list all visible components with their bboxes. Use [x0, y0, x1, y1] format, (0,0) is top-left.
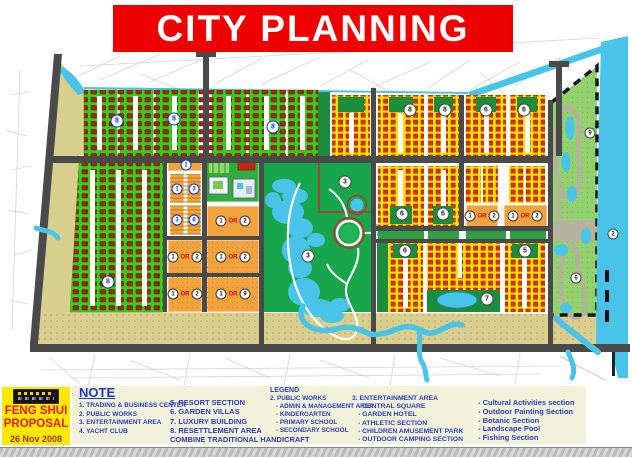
- proposal-line2: PROPOSAL: [2, 418, 70, 431]
- title-banner: CITY PLANNING: [113, 5, 513, 52]
- zone-number-label: 6: [518, 104, 531, 117]
- zone-number-label: 8: [168, 113, 181, 126]
- company-logo: [13, 389, 59, 404]
- zone-number-label: 3: [189, 184, 200, 195]
- proposal-line1: FENG SHUI: [2, 405, 70, 418]
- legend-item: - GARDEN HOTEL: [355, 411, 463, 419]
- plaza: [552, 220, 598, 242]
- legend-head: 3. ENTERTAINMENT AREA: [352, 395, 463, 403]
- legend-extra: - Cultural Activities section- Outdoor P…: [478, 399, 574, 443]
- legend-title: LEGEND: [270, 387, 299, 394]
- legend-item: - CENTRAL SQUARE: [355, 403, 463, 411]
- zone-or-label: 1OR2: [465, 211, 500, 222]
- zone-number-label: 1: [181, 160, 192, 171]
- legend-entertainment: 3. ENTERTAINMENT AREA - CENTRAL SQUARE- …: [352, 395, 463, 444]
- zone-or-label: 1OR2: [168, 252, 203, 263]
- zone-number-label: 9: [585, 128, 596, 139]
- south-road: [30, 344, 630, 352]
- zone-number-label: 2: [608, 229, 619, 240]
- zone-number-label: 6: [396, 208, 409, 221]
- zone-number-label: 3: [172, 215, 183, 226]
- or-text: OR: [477, 213, 488, 219]
- river-east: [596, 36, 628, 378]
- zone-or-label: 1OR2: [508, 211, 543, 222]
- or-text: OR: [180, 254, 191, 260]
- note-item: COMBINE TRADITIONAL HANDICRAFT: [170, 435, 309, 444]
- note-title: NOTE: [79, 385, 115, 400]
- city-planning-slide: CITY PLANNING 88888866666573396211336 1O…: [0, 0, 632, 457]
- zone-number-label: 8: [267, 121, 280, 134]
- luxury-pond: [437, 292, 477, 308]
- page-title: CITY PLANNING: [156, 8, 469, 50]
- proposal-box: FENG SHUI PROPOSAL 26 Nov 2008: [2, 387, 70, 445]
- zone-number-label: 6: [189, 215, 200, 226]
- or-text: OR: [228, 254, 239, 260]
- proposal-date: 26 Nov 2008: [2, 434, 70, 444]
- legend-item: - CHILDREN AMUSEMENT PARK: [355, 428, 463, 436]
- zone-number-label: 8: [102, 276, 115, 289]
- zone-or-label: 1OR2: [168, 289, 203, 300]
- zone-number-label: 5: [519, 245, 532, 258]
- or-text: OR: [180, 291, 191, 297]
- legend-item: - OUTDOOR CAMPING SECTION: [355, 436, 463, 444]
- zone-or-label: 1OR2: [216, 252, 251, 263]
- or-text: OR: [228, 218, 239, 224]
- bottom-table-edge: [0, 447, 632, 457]
- zone-number-label: 8: [111, 115, 124, 128]
- zone-or-label: 1OR9: [216, 289, 251, 300]
- zone-number-label: 8: [404, 104, 417, 117]
- zone-number-label: 7: [481, 293, 494, 306]
- legend-item: - ATHLETIC SECTION: [355, 420, 463, 428]
- north-spur-road: [556, 66, 562, 156]
- green-strips: [378, 231, 546, 239]
- zone-number-label: 8: [439, 104, 452, 117]
- zone-number-label: 6: [399, 245, 412, 258]
- zone-number-label: 6: [571, 273, 582, 284]
- zone-number-label: 6: [480, 104, 493, 117]
- zone-number-label: 3: [339, 176, 352, 189]
- legend-sublist: - CENTRAL SQUARE- GARDEN HOTEL- ATHLETIC…: [352, 403, 463, 444]
- north-spur-road: [203, 56, 209, 157]
- legend-item: - Fishing Section: [478, 434, 574, 443]
- zone-or-label: 1OR2: [216, 216, 251, 227]
- zone-number-label: 6: [437, 208, 450, 221]
- public-works-block: [205, 158, 259, 202]
- or-text: OR: [520, 213, 531, 219]
- zone-number-label: 1: [172, 184, 183, 195]
- or-text: OR: [228, 291, 239, 297]
- zone-number-label: 3: [302, 250, 315, 263]
